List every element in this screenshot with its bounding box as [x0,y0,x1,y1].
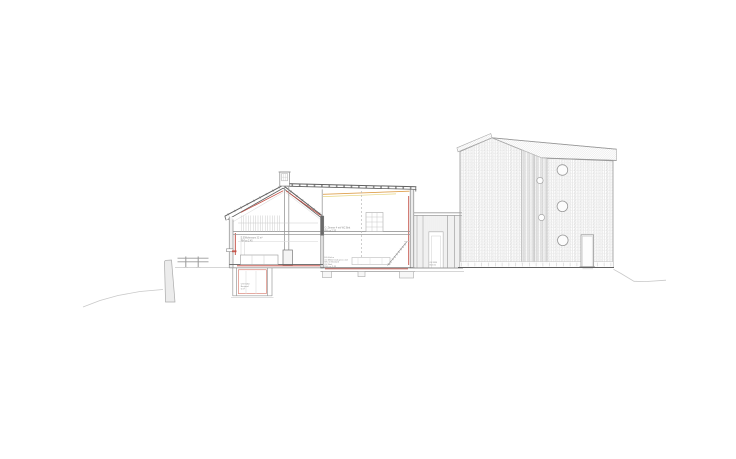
kitchen-counter [241,255,279,265]
room-label: 2.5 Wohnraum 32 m² [241,237,263,240]
porthole-window [557,201,568,212]
entry-door [581,235,594,267]
section-drawing: 2.5 Wohnraum 32 m² RH ca 2.45 O. Zimmer … [0,0,736,459]
roof-lantern [279,172,291,186]
porthole-window [557,165,568,176]
room-label: 6 m² [241,288,245,291]
upper-roof [287,184,417,197]
porthole-window-small [537,177,543,183]
right-building-elevation [457,134,617,269]
porthole-window [558,235,569,246]
basement [231,268,274,297]
left-house-section: 2.5 Wohnraum 32 m² RH ca 2.45 O. Zimmer … [225,172,416,297]
retaining-wall [165,260,176,302]
porthole-window-small [538,214,544,220]
bed [352,258,390,265]
room-label: O. Zimmer 4 mit WC Bett [325,227,351,230]
drawing-canvas: 2.5 Wohnraum 32 m² RH ca 2.45 O. Zimmer … [0,0,736,459]
chimney-flue [283,186,292,265]
room-label: RH: ca. 2.35 [325,266,337,268]
stove [283,250,292,265]
room-label: RH ca 2.35 [325,230,337,232]
terrain-right [614,269,667,281]
room-label: RH ca 2.45 [241,240,253,242]
level-label: 652.50 [430,265,437,267]
connector-link: OK FFB 652.50 [410,213,464,272]
middle-wall [321,189,324,267]
left-exterior-wall [227,217,237,269]
right-wall [409,189,414,267]
terrain-left [83,260,229,307]
garden-railing [178,257,209,268]
staircase [388,242,411,266]
interior-right-rooms [352,191,410,267]
